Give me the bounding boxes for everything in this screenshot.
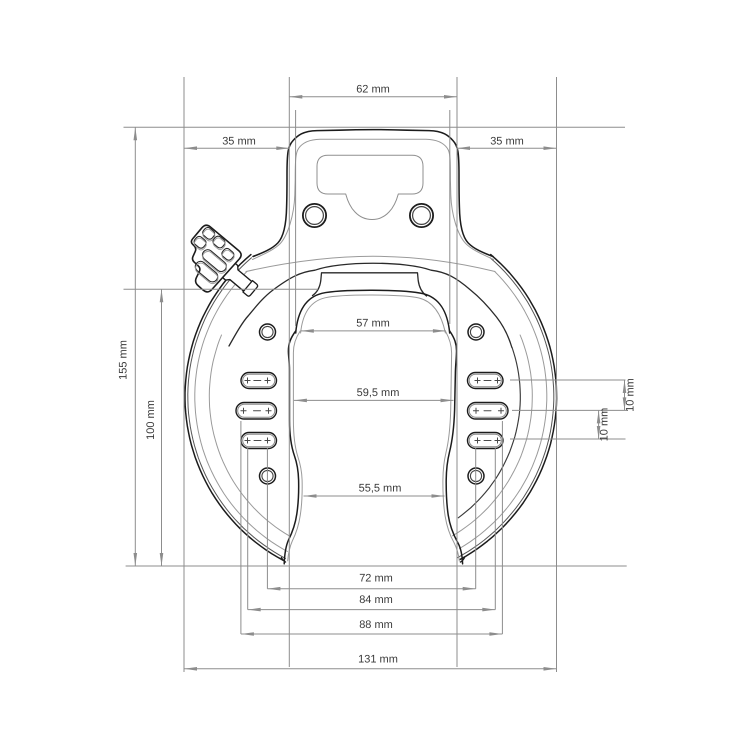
svg-text:72 mm: 72 mm <box>359 573 393 585</box>
svg-text:59,5 mm: 59,5 mm <box>357 387 400 399</box>
svg-text:10 mm: 10 mm <box>599 408 611 442</box>
svg-text:100 mm: 100 mm <box>145 400 157 440</box>
svg-text:10 mm: 10 mm <box>625 378 637 412</box>
svg-text:84 mm: 84 mm <box>359 594 393 606</box>
svg-text:35 mm: 35 mm <box>490 135 524 147</box>
svg-text:131 mm: 131 mm <box>358 654 398 666</box>
svg-text:62 mm: 62 mm <box>356 84 390 96</box>
svg-text:88 mm: 88 mm <box>359 619 393 631</box>
svg-text:57 mm: 57 mm <box>356 318 390 330</box>
svg-text:155 mm: 155 mm <box>118 340 130 380</box>
svg-text:35 mm: 35 mm <box>222 135 256 147</box>
svg-text:55,5 mm: 55,5 mm <box>359 483 402 495</box>
